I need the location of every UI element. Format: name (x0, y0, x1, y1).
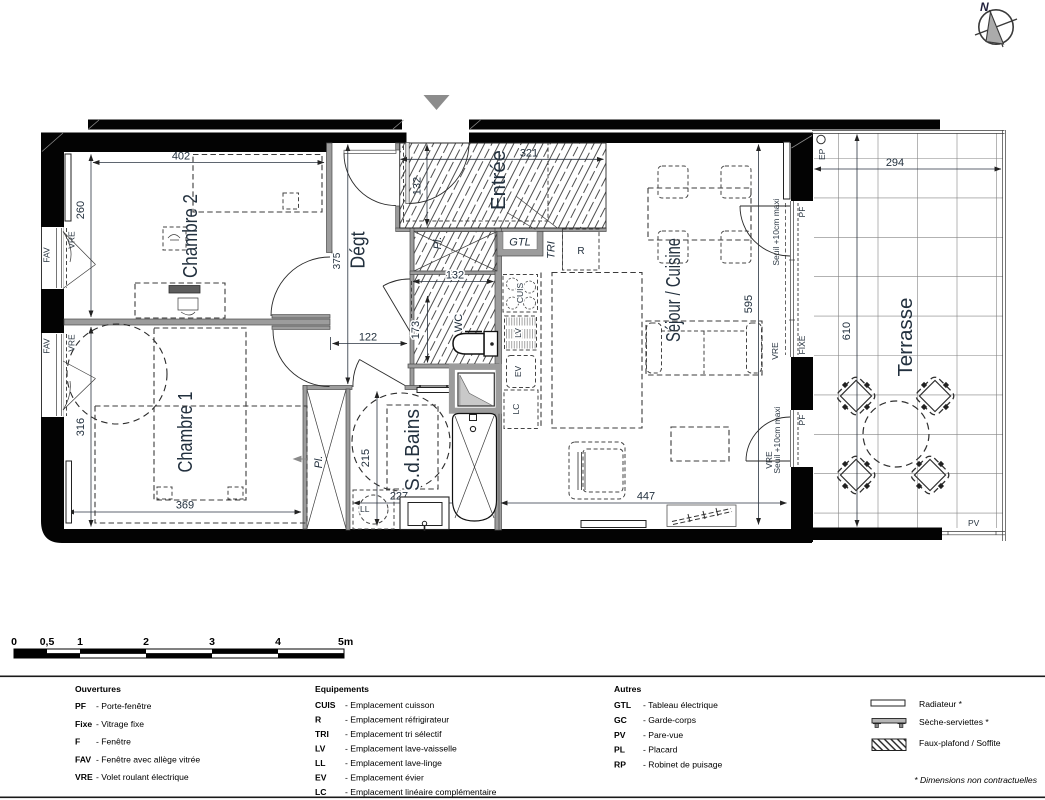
svg-text:- Garde-corps: - Garde-corps (643, 715, 696, 725)
svg-text:GC: GC (614, 715, 627, 725)
svg-text:Chambre 2: Chambre 2 (180, 194, 202, 278)
svg-text:- Pare-vue: - Pare-vue (643, 730, 683, 740)
svg-text:Autres: Autres (614, 684, 641, 694)
svg-text:PV: PV (968, 518, 980, 528)
svg-text:- Emplacement évier: - Emplacement évier (345, 773, 424, 783)
svg-text:Radiateur *: Radiateur * (919, 699, 963, 709)
svg-text:* Dimensions non contractuelle: * Dimensions non contractuelles (914, 775, 1037, 785)
svg-text:- Tableau électrique: - Tableau électrique (643, 700, 718, 710)
svg-text:369: 369 (176, 500, 194, 512)
svg-text:PL: PL (614, 745, 625, 755)
svg-text:Fixe: Fixe (75, 719, 92, 729)
svg-text:215: 215 (360, 449, 372, 467)
svg-text:LL: LL (315, 758, 326, 768)
svg-text:TRI: TRI (315, 729, 329, 739)
svg-text:GTL: GTL (614, 700, 631, 710)
svg-text:Equipements: Equipements (315, 684, 369, 694)
svg-text:GTL: GTL (509, 237, 530, 249)
svg-text:447: 447 (637, 491, 655, 503)
svg-text:595: 595 (743, 295, 755, 313)
svg-text:VRE: VRE (770, 342, 780, 360)
svg-text:FAV: FAV (42, 338, 52, 354)
svg-text:375: 375 (332, 252, 343, 269)
svg-text:Dégt: Dégt (348, 231, 370, 268)
svg-text:Pl.: Pl. (313, 456, 325, 469)
svg-text:RP: RP (614, 760, 626, 770)
svg-text:4: 4 (275, 636, 281, 648)
svg-text:294: 294 (886, 157, 904, 169)
svg-text:TRI: TRI (546, 241, 558, 259)
svg-text:Séjour / Cuisine: Séjour / Cuisine (663, 238, 685, 342)
svg-text:Sèche-serviettes *: Sèche-serviettes * (919, 717, 989, 727)
svg-text:N: N (980, 0, 989, 14)
svg-text:321: 321 (520, 148, 538, 160)
svg-text:- Emplacement réfrigirateur: - Emplacement réfrigirateur (345, 715, 449, 725)
svg-text:0: 0 (11, 636, 17, 648)
svg-text:- Vitrage fixe: - Vitrage fixe (96, 719, 144, 729)
svg-text:Seuil +10cm maxi: Seuil +10cm maxi (771, 198, 781, 265)
svg-text:Chambre 1: Chambre 1 (175, 392, 197, 473)
svg-text:173: 173 (410, 321, 422, 339)
svg-text:LL: LL (360, 504, 370, 514)
svg-text:R: R (577, 246, 584, 257)
svg-text:- Robinet de puisage: - Robinet de puisage (643, 760, 723, 770)
svg-text:Seuil +10cm maxi: Seuil +10cm maxi (772, 406, 782, 473)
svg-text:0,5: 0,5 (40, 636, 55, 648)
svg-text:- Placard: - Placard (643, 745, 678, 755)
svg-text:- Fenêtre: - Fenêtre (96, 737, 131, 747)
svg-text:PF: PF (797, 415, 807, 426)
svg-text:S.d.Bains: S.d.Bains (402, 409, 424, 491)
svg-text:R: R (315, 715, 322, 725)
svg-text:LV: LV (513, 328, 523, 338)
svg-text:1: 1 (77, 636, 83, 648)
svg-text:FAV: FAV (75, 754, 91, 764)
svg-text:Pl.: Pl. (432, 237, 444, 250)
svg-text:- Volet roulant électrique: - Volet roulant électrique (96, 772, 189, 782)
svg-text:PV: PV (614, 730, 626, 740)
svg-text:3: 3 (209, 636, 215, 648)
svg-text:5m: 5m (338, 636, 353, 648)
svg-text:LC: LC (315, 787, 326, 797)
svg-text:Faux-plafond / Soffite: Faux-plafond / Soffite (919, 738, 1001, 748)
svg-text:F: F (75, 737, 80, 747)
svg-text:VRE: VRE (75, 772, 93, 782)
svg-text:PF: PF (797, 207, 807, 218)
svg-text:FIXE: FIXE (797, 335, 807, 354)
svg-text:- Emplacement tri sélectif: - Emplacement tri sélectif (345, 729, 442, 739)
svg-text:FAV: FAV (42, 247, 52, 263)
svg-text:CUIS: CUIS (315, 700, 336, 710)
svg-text:EV: EV (513, 366, 523, 378)
svg-text:- Emplacement cuisson: - Emplacement cuisson (345, 700, 435, 710)
svg-text:610: 610 (841, 322, 853, 340)
svg-text:316: 316 (75, 418, 87, 436)
svg-text:- Emplacement lave-linge: - Emplacement lave-linge (345, 758, 442, 768)
svg-text:122: 122 (359, 332, 377, 344)
svg-text:132: 132 (412, 177, 424, 195)
svg-text:LC: LC (511, 404, 521, 415)
svg-text:EV: EV (315, 773, 327, 783)
svg-text:PF: PF (75, 701, 86, 711)
svg-text:- Emplacement linéaire complém: - Emplacement linéaire complémentaire (345, 787, 497, 797)
svg-text:CUIS: CUIS (515, 283, 525, 304)
svg-text:- Porte-fenêtre: - Porte-fenêtre (96, 701, 152, 711)
svg-text:132: 132 (446, 270, 464, 282)
svg-text:- Fenêtre avec allège vitrée: - Fenêtre avec allège vitrée (96, 754, 200, 764)
svg-text:LV: LV (315, 744, 326, 754)
svg-text:- Emplacement lave-vaisselle: - Emplacement lave-vaisselle (345, 744, 457, 754)
svg-text:EP: EP (817, 148, 827, 160)
svg-text:402: 402 (172, 151, 190, 163)
svg-text:Ouvertures: Ouvertures (75, 684, 121, 694)
svg-text:Terrasse: Terrasse (895, 298, 917, 377)
svg-text:260: 260 (75, 201, 87, 219)
svg-text:2: 2 (143, 636, 149, 648)
svg-text:VRE: VRE (67, 334, 77, 352)
svg-text:WC: WC (453, 314, 465, 332)
